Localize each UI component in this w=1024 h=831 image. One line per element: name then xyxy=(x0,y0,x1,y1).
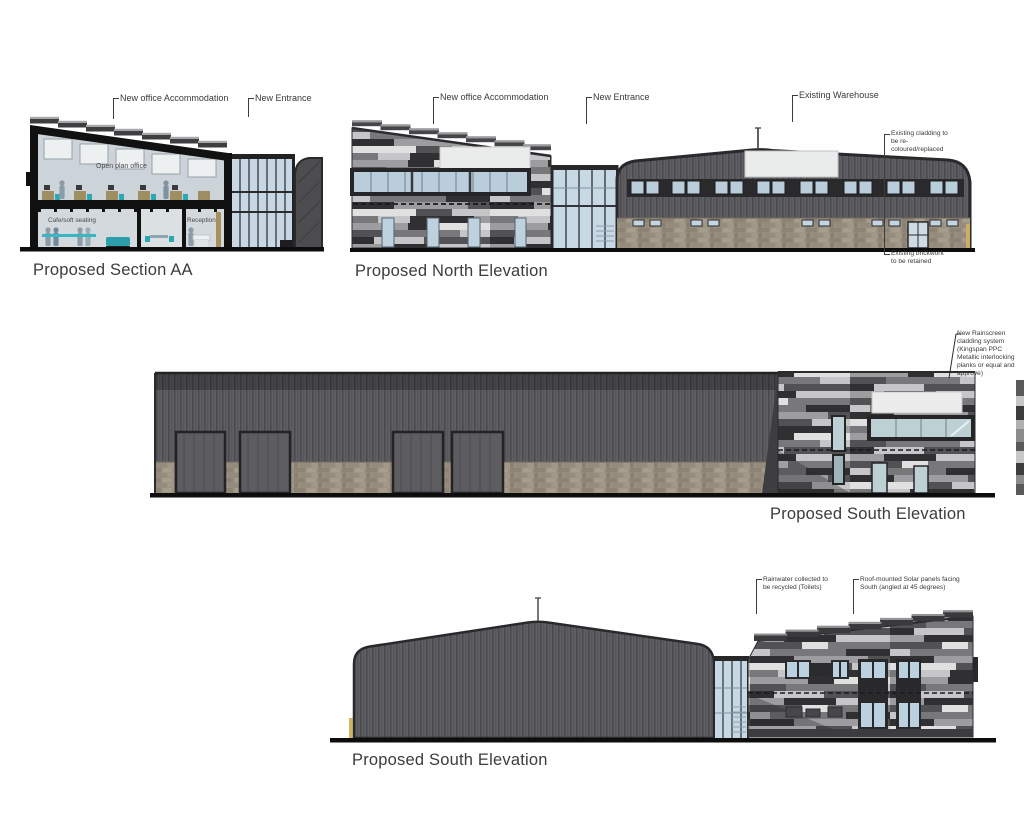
label-new-office-accommodation: New office Accommodation xyxy=(120,93,228,103)
label-reception: Reception xyxy=(187,217,216,224)
entrance-atrium xyxy=(232,154,295,249)
leader-line xyxy=(248,98,254,117)
note-rainscreen: New Rainscreen cladding system (Kingspan… xyxy=(957,330,1023,378)
label-open-plan-office: Open plan office xyxy=(96,163,147,170)
leader-line xyxy=(756,579,762,614)
ground-line xyxy=(330,738,996,743)
drawing-sheet: New office Accommodation New Entrance Op… xyxy=(0,0,1024,831)
ground-line xyxy=(20,247,324,252)
label-new-office-accommodation: New office Accommodation xyxy=(440,92,548,102)
south-elevation-gable-title: Proposed South Elevation xyxy=(352,751,548,770)
leader-line xyxy=(433,97,439,124)
cladding-sliver xyxy=(1016,380,1024,495)
entrance-glazing xyxy=(551,165,619,248)
office-block xyxy=(350,120,551,248)
leader-line xyxy=(884,134,890,255)
south-elevation-long-title: Proposed South Elevation xyxy=(770,505,966,524)
note-existing-cladding: Existing cladding to be re-coloured/repl… xyxy=(891,130,955,154)
ground-line xyxy=(350,248,975,252)
north-elevation-title: Proposed North Elevation xyxy=(355,262,548,281)
downpipe xyxy=(966,224,970,248)
office-block xyxy=(748,610,978,737)
office-end xyxy=(762,372,975,493)
sign-panel xyxy=(440,147,530,170)
sign-panel xyxy=(872,392,962,413)
warehouse-long-wall xyxy=(155,373,778,493)
leader-line xyxy=(113,98,119,119)
south-elevation-gable-artwork xyxy=(330,572,1000,762)
note-rainwater: Rainwater collected to be recycled (Toil… xyxy=(763,576,833,592)
downpipe xyxy=(349,718,353,738)
warehouse-sign-panel xyxy=(745,151,838,177)
note-solar-panels: Roof-mounted Solar panels facing South (… xyxy=(860,576,970,592)
leader-line xyxy=(586,97,592,124)
label-new-entrance: New Entrance xyxy=(255,93,312,103)
label-cafe: Cafe/soft seating xyxy=(48,217,96,224)
label-existing-warehouse: Existing Warehouse xyxy=(799,90,879,100)
note-existing-brickwork: Existing brickwork to be retained xyxy=(891,250,945,266)
glazed-link xyxy=(713,656,749,738)
warehouse-sliver xyxy=(295,158,322,249)
section-aa-title: Proposed Section AA xyxy=(33,261,193,280)
section-aa-artwork xyxy=(18,88,328,263)
label-new-entrance: New Entrance xyxy=(593,92,650,102)
ground-line xyxy=(150,493,995,498)
leader-line xyxy=(853,579,859,614)
warehouse-gable xyxy=(349,598,714,738)
south-elevation-long-artwork xyxy=(150,328,1024,500)
leader-line xyxy=(792,95,798,122)
